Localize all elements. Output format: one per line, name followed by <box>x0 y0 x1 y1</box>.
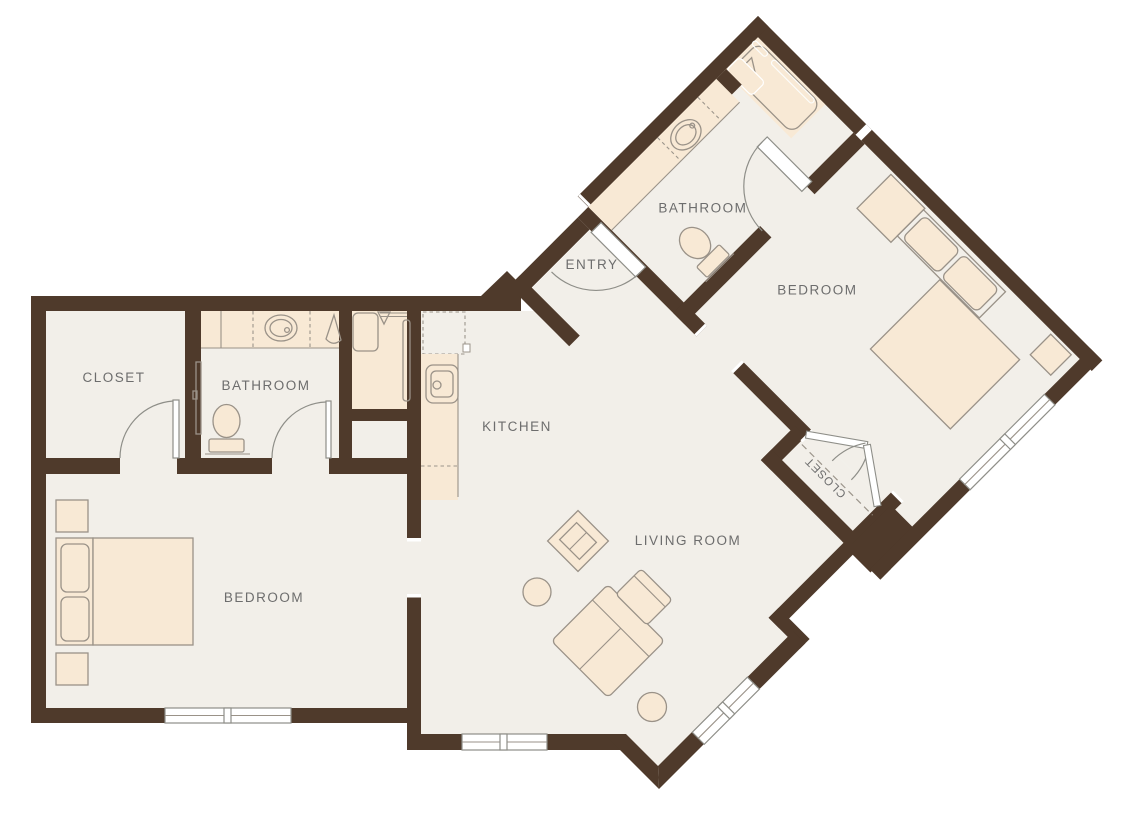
svg-text:BEDROOM: BEDROOM <box>224 590 304 605</box>
svg-text:BATHROOM: BATHROOM <box>222 378 311 393</box>
svg-text:BEDROOM: BEDROOM <box>777 283 857 298</box>
svg-text:ENTRY: ENTRY <box>565 257 618 272</box>
svg-text:KITCHEN: KITCHEN <box>482 419 552 434</box>
svg-text:LIVING ROOM: LIVING ROOM <box>635 533 742 548</box>
svg-text:BATHROOM: BATHROOM <box>658 201 747 216</box>
svg-text:CLOSET: CLOSET <box>82 370 145 385</box>
